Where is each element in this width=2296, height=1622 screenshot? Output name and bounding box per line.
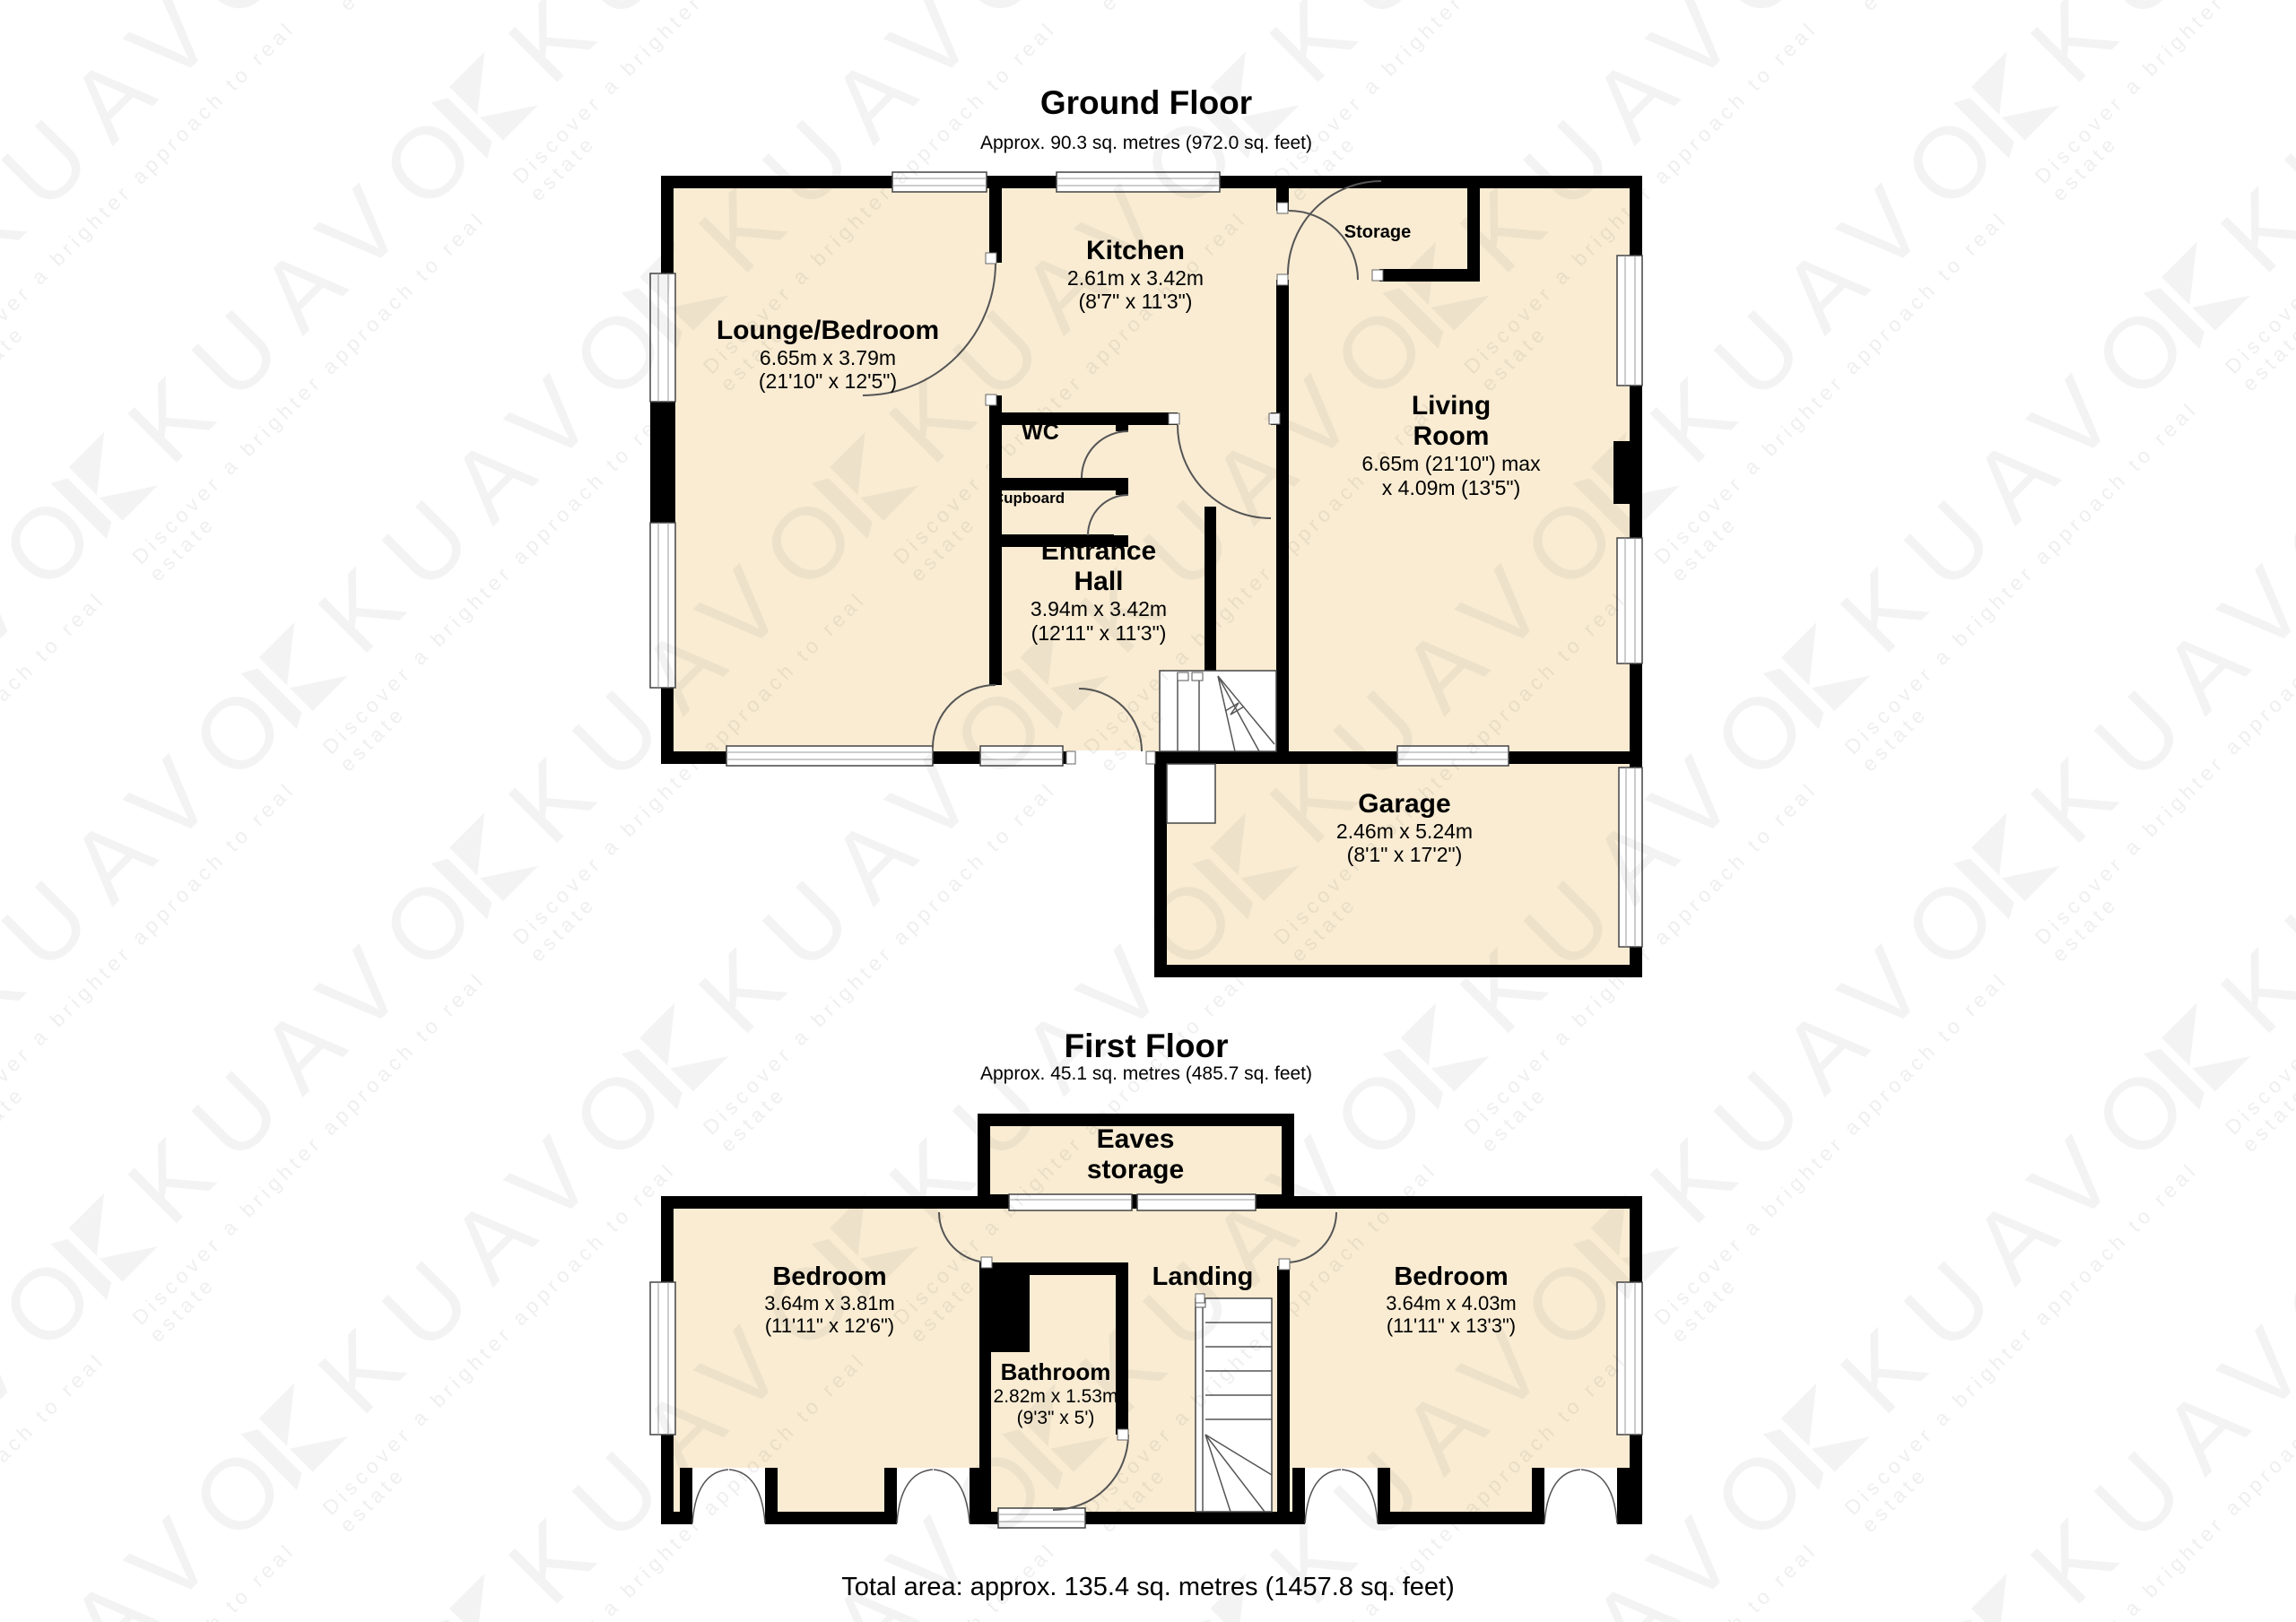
garage-side-door bbox=[1167, 764, 1215, 823]
room-dims-imperial: (8'1" x 17'2") bbox=[1336, 843, 1473, 866]
room-label-lounge-bedroom: Lounge/Bedroom 6.65m x 3.79m (21'10" x 1… bbox=[717, 316, 939, 394]
room-label-kitchen: Kitchen 2.61m x 3.42m (8'7" x 11'3") bbox=[1067, 236, 1204, 314]
room-name: Entrance bbox=[1031, 536, 1167, 567]
room-label-cupboard: Cupboard bbox=[993, 490, 1065, 507]
room-dims-metric: 3.64m x 3.81m bbox=[764, 1292, 895, 1314]
room-dims-metric: 6.65m (21'10") max bbox=[1361, 452, 1540, 475]
room-label-living-room: Living Room 6.65m (21'10") max x 4.09m (… bbox=[1361, 391, 1540, 499]
ground-floor-title: Ground Floor bbox=[1040, 84, 1252, 122]
room-name: Bedroom bbox=[1386, 1262, 1517, 1292]
floorplan-canvas: Ground Floor Approx. 90.3 sq. metres (97… bbox=[0, 0, 2296, 1622]
room-label-bathroom: Bathroom 2.82m x 1.53m (9'3" x 5') bbox=[994, 1359, 1118, 1429]
room-dims-metric: 6.65m x 3.79m bbox=[717, 346, 939, 369]
room-dims-metric: 2.46m x 5.24m bbox=[1336, 820, 1473, 843]
room-name: Eaves bbox=[1087, 1124, 1184, 1155]
room-dims-metric: 2.82m x 1.53m bbox=[994, 1386, 1118, 1408]
room-label-eaves-storage: Eaves storage bbox=[1087, 1124, 1184, 1185]
room-label-garage: Garage 2.46m x 5.24m (8'1" x 17'2") bbox=[1336, 789, 1473, 867]
room-name: Hall bbox=[1031, 567, 1167, 597]
first-floor-area: Approx. 45.1 sq. metres (485.7 sq. feet) bbox=[980, 1063, 1312, 1085]
room-dims-imperial: (12'11" x 11'3") bbox=[1031, 621, 1167, 645]
room-dims-imperial: (11'11" x 12'6") bbox=[764, 1314, 895, 1337]
room-dims-metric: 3.94m x 3.42m bbox=[1031, 597, 1167, 620]
room-dims-imperial: x 4.09m (13'5") bbox=[1361, 476, 1540, 499]
room-label-landing: Landing bbox=[1152, 1262, 1254, 1292]
room-label-bedroom-right: Bedroom 3.64m x 4.03m (11'11" x 13'3") bbox=[1386, 1262, 1517, 1337]
total-area-text: Total area: approx. 135.4 sq. metres (14… bbox=[841, 1573, 1455, 1602]
room-name: Living bbox=[1361, 391, 1540, 421]
room-dims-metric: 2.61m x 3.42m bbox=[1067, 266, 1204, 290]
room-name: storage bbox=[1087, 1155, 1184, 1185]
ground-floor-stairs bbox=[1160, 671, 1276, 751]
room-dims-imperial: (8'7" x 11'3") bbox=[1067, 290, 1204, 313]
eaves-openings bbox=[1009, 1194, 1256, 1210]
room-label-storage: Storage bbox=[1344, 222, 1411, 243]
room-name: Garage bbox=[1336, 789, 1473, 820]
room-dims-imperial: (21'10" x 12'5") bbox=[717, 369, 939, 393]
first-floor-stairs bbox=[1196, 1298, 1272, 1512]
room-dims-imperial: (11'11" x 13'3") bbox=[1386, 1314, 1517, 1337]
room-dims-metric: 3.64m x 4.03m bbox=[1386, 1292, 1517, 1314]
room-label-wc: WC bbox=[1022, 420, 1059, 446]
first-floor-title: First Floor bbox=[1065, 1028, 1229, 1065]
room-name: Kitchen bbox=[1067, 236, 1204, 266]
room-label-entrance-hall: Entrance Hall 3.94m x 3.42m (12'11" x 11… bbox=[1031, 536, 1167, 645]
room-dims-imperial: (9'3" x 5') bbox=[994, 1408, 1118, 1429]
front-door-opening bbox=[1073, 750, 1148, 765]
room-name: Room bbox=[1361, 421, 1540, 452]
room-name: Lounge/Bedroom bbox=[717, 316, 939, 346]
ground-floor-area: Approx. 90.3 sq. metres (972.0 sq. feet) bbox=[980, 133, 1312, 154]
room-name: Bedroom bbox=[764, 1262, 895, 1292]
room-name: Bathroom bbox=[994, 1359, 1118, 1386]
room-label-bedroom-left: Bedroom 3.64m x 3.81m (11'11" x 12'6") bbox=[764, 1262, 895, 1337]
